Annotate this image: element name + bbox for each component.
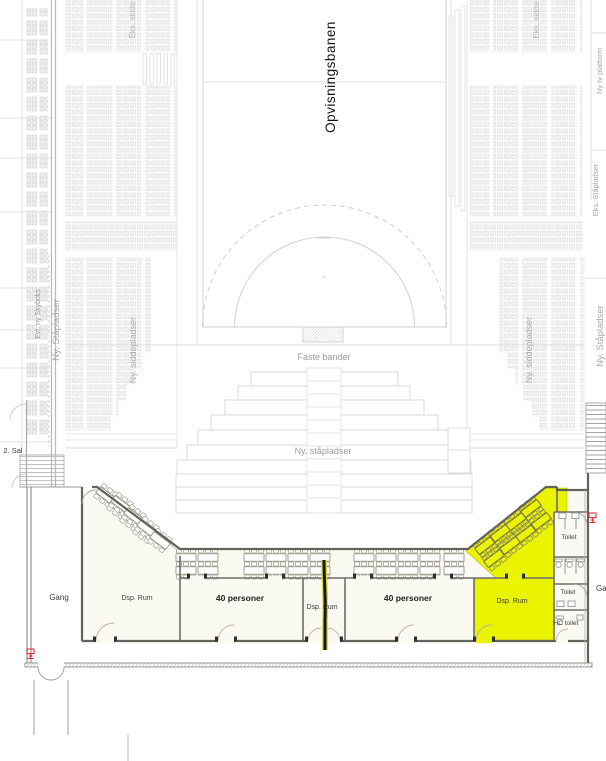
right-staircase — [586, 403, 606, 473]
left-skybox-strip — [0, 0, 56, 487]
playing-field — [203, 0, 447, 342]
goal-area-arc — [235, 237, 415, 327]
section-line — [324, 560, 325, 650]
goal-box — [303, 327, 343, 342]
corridor-wall — [27, 487, 31, 663]
terrace-stairs — [307, 368, 341, 513]
exterior-wall — [25, 662, 592, 761]
floor-plan: Opvisningsbanen Faste bander Ny. ståplad… — [0, 0, 606, 761]
fire-equipment-icon-right — [589, 513, 596, 523]
standing-terraces — [176, 368, 472, 513]
right-grandstand — [449, 0, 584, 440]
left-grandstand — [66, 0, 176, 440]
floor-plan-drawing — [0, 0, 606, 761]
double-door-arc — [38, 667, 64, 680]
free-throw-arc — [203, 205, 447, 327]
